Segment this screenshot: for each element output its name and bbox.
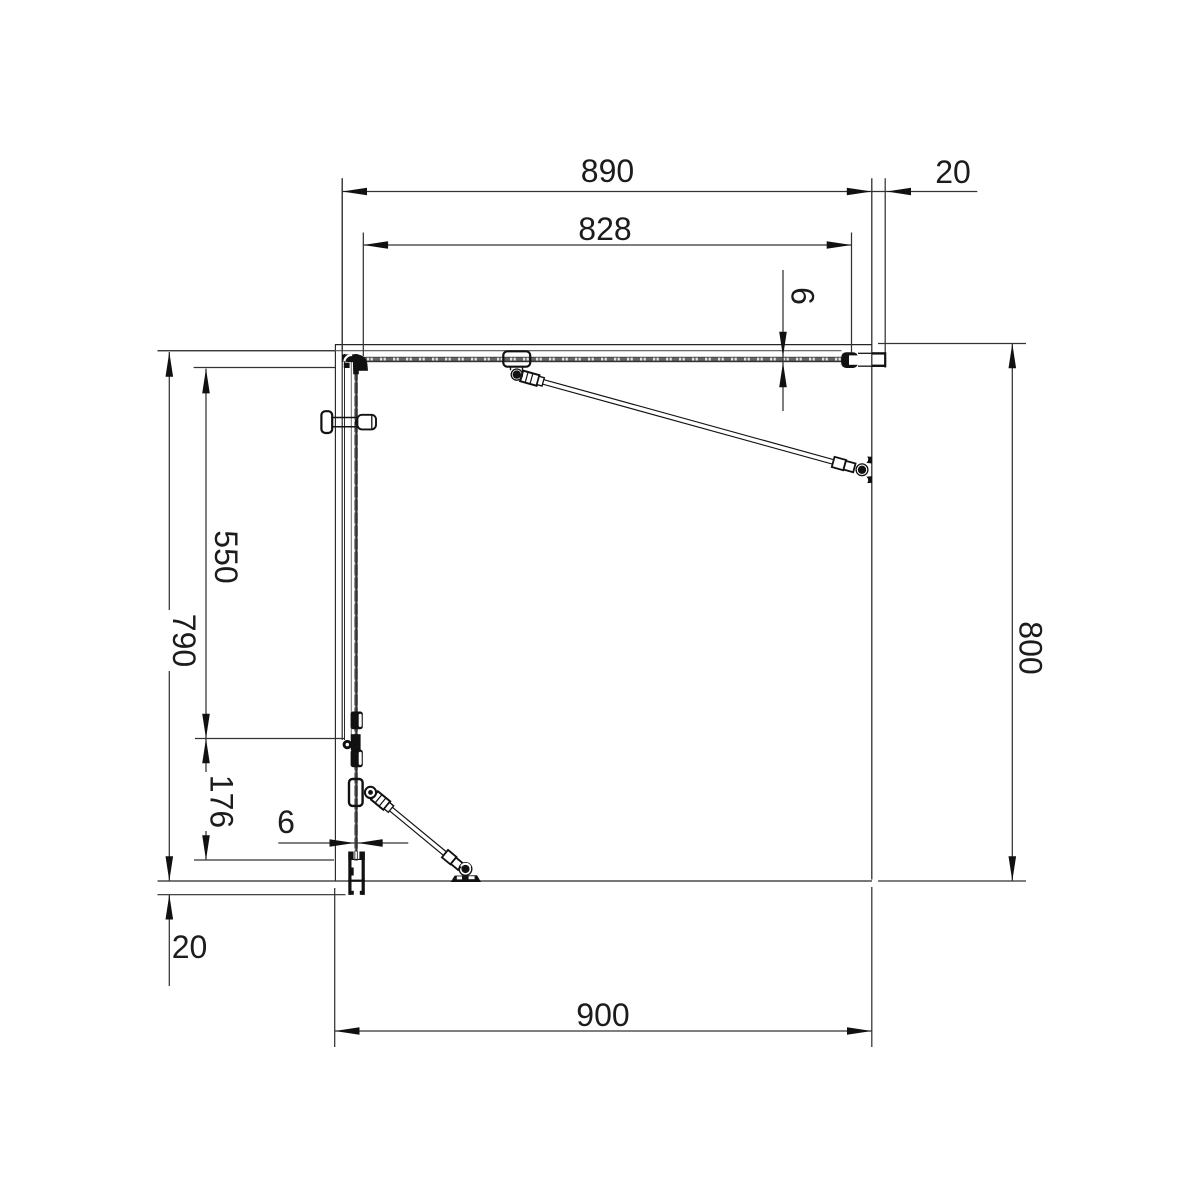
svg-text:790: 790 (166, 614, 202, 667)
svg-text:6: 6 (785, 287, 821, 305)
svg-text:828: 828 (578, 211, 631, 247)
svg-text:20: 20 (172, 929, 208, 965)
svg-text:20: 20 (935, 154, 971, 190)
svg-text:800: 800 (1013, 621, 1049, 674)
svg-text:550: 550 (208, 530, 244, 583)
svg-text:176: 176 (204, 775, 240, 828)
svg-text:900: 900 (576, 997, 629, 1033)
svg-text:890: 890 (581, 153, 634, 189)
svg-text:6: 6 (277, 804, 295, 840)
